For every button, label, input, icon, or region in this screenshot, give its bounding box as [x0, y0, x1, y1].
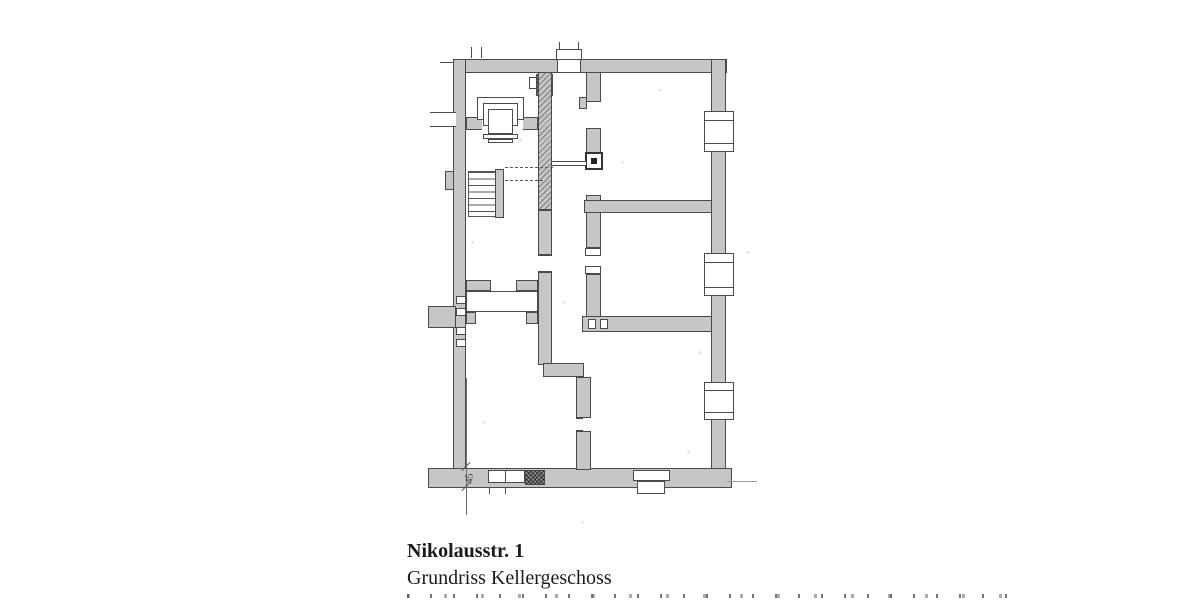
door-opening-top-entrance	[557, 60, 581, 72]
window-right-3	[704, 382, 734, 420]
vestibule-cell	[466, 291, 538, 312]
door-opening-bottom-left	[488, 470, 525, 483]
dimension-tick-left-wall	[440, 62, 453, 63]
wall-exterior-top	[455, 59, 727, 73]
threshold-hall	[552, 161, 586, 166]
wall-corridor-right-b	[586, 274, 601, 318]
wall-niche-1	[456, 296, 466, 304]
window-left-wall	[430, 112, 456, 127]
wall-corridor-jog	[543, 363, 584, 377]
cutoff-text-line	[407, 594, 1012, 598]
wall-niche-3	[456, 327, 466, 335]
opening-vestibule-lower	[475, 312, 527, 324]
caption-block: Nikolausstr. 1 Grundriss Kellergeschoss	[407, 541, 612, 588]
door-opening-spine	[538, 255, 552, 272]
chimney-side-box	[529, 77, 537, 89]
stair-dashed-line-a	[505, 167, 553, 168]
window-jamb-corridor-a	[585, 248, 601, 256]
tick-below-door-b	[505, 487, 506, 494]
stair-dashed-line-b	[505, 180, 543, 181]
window-right-2	[704, 253, 734, 296]
wall-divider-upper-right	[584, 200, 712, 213]
wall-spine-hatched	[538, 72, 552, 210]
dimension-tick-topleft-a	[471, 47, 472, 58]
wall-spine-lower-b	[538, 272, 552, 365]
stair-spine	[495, 169, 504, 218]
tick-below-door-a	[489, 487, 490, 494]
porch-tick-right	[578, 42, 579, 49]
window-right-1	[704, 111, 734, 152]
cellar-stair-step-b	[488, 139, 513, 143]
wall-spine-lower-a	[538, 210, 552, 255]
door-notch-corridor-lower	[576, 418, 583, 431]
wall-neighbor-wing	[428, 306, 456, 328]
door-block-a	[588, 319, 596, 329]
window-jamb-corridor-b	[585, 266, 601, 274]
wall-corridor-lower-b	[576, 431, 591, 470]
wall-pier-left	[445, 171, 454, 190]
dimension-line-vertical	[466, 378, 467, 515]
door-block-b	[600, 319, 608, 329]
cellar-stair-rect-inner	[488, 109, 513, 134]
paper-specks	[0, 0, 1, 1]
window-bottom-right	[633, 470, 670, 481]
dimension-tick-topleft-b	[481, 47, 482, 58]
dimension-line-right-ext	[727, 481, 757, 482]
dimension-label-45: 45	[465, 474, 476, 484]
wall-hall-right-b	[586, 128, 601, 153]
plan-title: Nikolausstr. 1	[407, 541, 612, 561]
blocked-opening-hatched	[525, 470, 545, 485]
stair-treads	[468, 171, 496, 217]
opening-vestibule-upper	[490, 280, 517, 291]
scanned-floorplan-page: 45 Nikolausstr. 1 Grundriss Kellergescho…	[0, 0, 1200, 600]
plan-subtitle: Grundriss Kellergeschoss	[407, 568, 612, 588]
porch-tick-left	[559, 42, 560, 49]
wall-niche-4	[456, 339, 466, 347]
pillar-shaft-symbol	[585, 152, 603, 170]
wall-corridor-lower-a	[576, 377, 591, 418]
wall-hall-right-a	[586, 72, 601, 102]
entrance-porch-step	[556, 49, 582, 60]
wall-niche-2	[456, 308, 466, 316]
light-well-bottom	[637, 481, 665, 494]
wall-hall-jamb-stub	[579, 97, 587, 109]
